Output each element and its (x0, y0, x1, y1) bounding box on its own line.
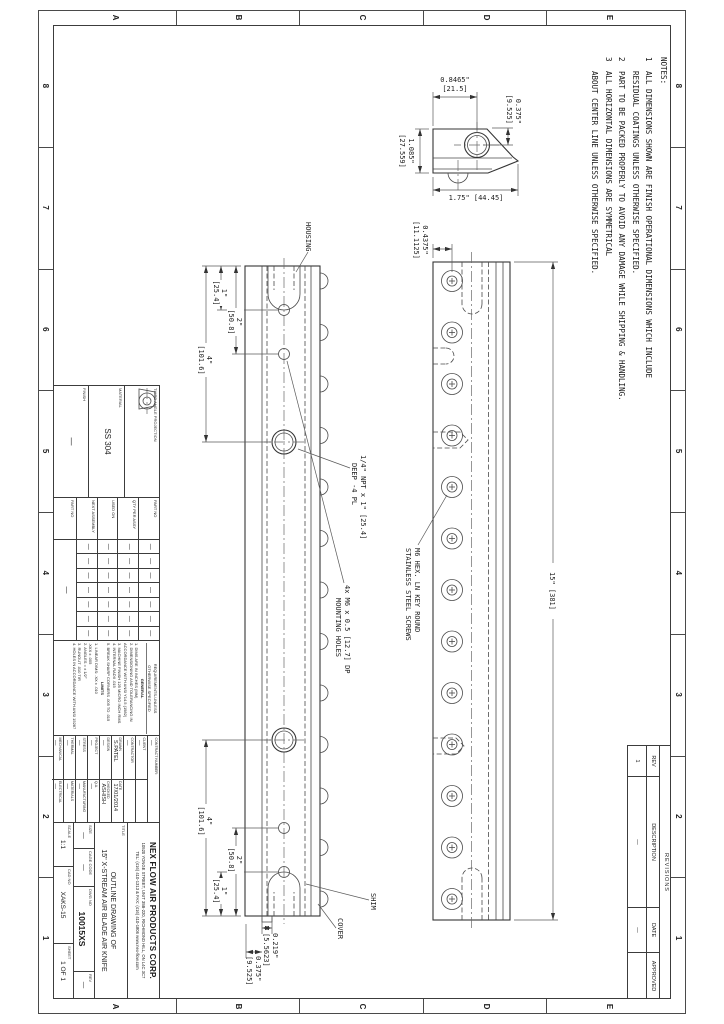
signoff-value: — (136, 736, 142, 779)
signoff-value: — (64, 736, 70, 779)
limit-requirement: 2. ANGLES = ± 1/2° (82, 643, 88, 734)
requirements-block: REQUIREMENTS-UNLESS OTHERWISE SPECIFIED … (54, 641, 159, 736)
contract-number-label: CONTRACT NUMBER: (154, 736, 159, 822)
signoff-label: THERMAL (70, 736, 75, 779)
dwg-no-value: 10015XS (77, 887, 87, 971)
revision-description: — (627, 777, 646, 908)
dim-2in-mm: [50.8] (227, 847, 235, 872)
requirements-and-signoff-block: REQUIREMENTS-UNLESS OTHERWISE SPECIFIED … (54, 641, 159, 823)
signoff-row: CONTRACTOR— (123, 736, 135, 822)
screw-head-bump (320, 325, 328, 341)
dim-endview-height: 1.085" (407, 138, 415, 163)
signoff-row: DESIGN—CHECKEDASHISH (99, 736, 111, 822)
general-requirement: 5. BREAK SHARP CORNERS .005 TO .015 (106, 643, 112, 734)
dim-step1: 0.219" (271, 933, 279, 958)
label-cover: COVER (336, 918, 344, 940)
label-npt-note: DEEP -4 PL (350, 463, 358, 505)
dim-screw-offset: 0.4375" (421, 225, 429, 255)
signoff-value: — (88, 780, 94, 823)
revisions-header-date: DATE (647, 908, 659, 953)
dim-endview-height-mm: [27.559] (398, 134, 406, 168)
cage-code-value: — (80, 849, 87, 886)
cage-code-label: CAGE CODE (88, 849, 94, 886)
label-shim: SHIM (369, 893, 377, 910)
signoff-cell: MECHANICAL— (52, 736, 63, 780)
screw-head-bump (320, 891, 328, 907)
size-value: — (80, 823, 87, 848)
label-npt-note: 1/4" NPT x 1" [25.4] (359, 455, 367, 539)
signoff-cell: MANUFACTURING— (76, 780, 87, 823)
company-block: NEX FLOW AIR PRODUCTS CORP. 10520 YONGE … (54, 823, 159, 998)
front-view: 15" [381] 0.4375" [11.1125] M6 HEX. LN K… (404, 221, 560, 930)
application-cell: — (139, 554, 159, 568)
dim-1in: 1" (220, 289, 228, 297)
drawing-sheet: 8877665544332211EEDDCCBBAA NOTES: 1ALL D… (0, 0, 724, 1024)
signoff-label: ELECTRICAL (58, 780, 63, 823)
application-row: USED ON——————— (97, 498, 118, 640)
revisions-header-rev: REV (647, 746, 659, 777)
signoff-label (135, 780, 136, 823)
application-row-label: USED ON (98, 498, 118, 540)
signoff-cell: MATERIALS— (64, 780, 75, 823)
signoff-cell: STRESS— (76, 736, 87, 780)
limit-requirement: 3. RUNOUT .010 TIR (77, 643, 83, 734)
screw-head-bump (320, 634, 328, 650)
signoff-cell: DATE17/01/2014 (112, 780, 123, 823)
signoff-block: CONTRACT NUMBER: — CLIENT—CONTRACTOR—DRA… (54, 736, 159, 822)
signoff-cell: CONTRACTOR— (124, 736, 135, 780)
signoff-cell: Q.A.— (88, 780, 99, 823)
application-cell: — (119, 612, 139, 626)
revisions-header-approved: APPROVED (647, 953, 659, 999)
signoff-cell: PROJECT— (88, 736, 99, 780)
dim-overall-length: 15" [381] (548, 572, 556, 610)
screw-head-bump (320, 376, 328, 392)
signoff-label: STRESS (82, 736, 87, 779)
dim-endview-width-mm: [21.5] (442, 85, 467, 93)
signoff-label (147, 780, 148, 823)
label-mounting-note: MOUNTING HOLES (334, 598, 342, 657)
signoff-label: MANUFACTURING (82, 780, 87, 823)
dim-endview-total: 1.75" [44.45] (449, 194, 504, 202)
application-cell: — (77, 540, 97, 554)
requirements-header: OTHERWISE SPECIFIED (147, 643, 153, 734)
application-row-label: QTY PER ASSY (119, 498, 139, 540)
application-cell: — (77, 569, 97, 583)
application-row: NEXT ASSEMBLY——————— (76, 498, 97, 640)
signoff-label: PROJECT (94, 736, 99, 779)
application-cell: — (139, 540, 159, 554)
application-row: QTY PER ASSY——————— (118, 498, 139, 640)
dwg-no-label: DWG NO (88, 887, 94, 971)
application-cell: — (77, 583, 97, 597)
dim-1in: 1" (220, 887, 228, 895)
application-cell: — (119, 569, 139, 583)
dim-2in: 2" (235, 318, 243, 326)
finish-value: — (67, 386, 76, 497)
screw-head-bump (320, 685, 328, 701)
limits-title: LIMITS (99, 643, 105, 734)
dim-4in-mm: [101.6] (197, 806, 205, 836)
general-title: GENERAL (139, 643, 145, 734)
application-cell: — (139, 569, 159, 583)
application-row: PART NO——————— (138, 498, 159, 640)
drawing-title: 15" X-STREAM AIR BLADE AIR KNIFE (99, 823, 108, 998)
signoff-value: ASHISH (100, 780, 106, 823)
screw-head-bump (320, 582, 328, 598)
third-angle-projection-icon (127, 386, 153, 497)
dim-2in-mm: [50.8] (227, 309, 235, 334)
requirements-header: REQUIREMENTS-UNLESS (152, 643, 158, 734)
application-cell: — (139, 612, 159, 626)
application-cell: — (98, 540, 118, 554)
revision-number: 1 (627, 746, 646, 777)
part-no-label: PART NO (54, 498, 76, 540)
sheet-value: 1 OF 1 (59, 944, 66, 998)
signoff-row: MECHANICAL—ELECTRICAL— (52, 736, 63, 822)
dim-4in: 4" (205, 817, 213, 825)
application-cell: — (139, 583, 159, 597)
title-block: THIRD ANGLE PROJECTION MATERIAL SS 304 F… (53, 385, 160, 999)
dim-endview-port-offset: 0.375" (514, 99, 522, 124)
material-block: THIRD ANGLE PROJECTION MATERIAL SS 304 F… (54, 386, 159, 498)
application-cell: — (98, 598, 118, 612)
signoff-cell (136, 780, 147, 823)
application-cell: — (119, 540, 139, 554)
signoff-cell (124, 780, 135, 823)
signoff-value: — (100, 736, 106, 779)
rev-label: REV (88, 972, 94, 998)
dim-2in: 2" (235, 856, 243, 864)
signoff-label: CONTRACTOR (130, 736, 135, 779)
dim-step2: 0.375" (254, 956, 262, 981)
application-cell: — (139, 598, 159, 612)
signoff-cell: DESIGN— (100, 736, 111, 780)
label-screw-note: M6 HEX. LN KEY ROUND (413, 548, 421, 632)
application-cell: — (98, 583, 118, 597)
dim-4in-mm: [101.6] (197, 345, 205, 375)
dim-1in-mm: [25.4] (212, 280, 220, 305)
dim-step1-mm: [5.5623] (262, 933, 270, 967)
drawing-title: OUTLINE DRAWING OF (108, 823, 117, 998)
screw-head-bump (320, 788, 328, 804)
limit-requirement: 4. HOLES IN ACCORDANCE WITH ANSI 15287 (71, 643, 77, 734)
size-label: SIZE (88, 823, 94, 848)
signoff-row: STRESS—MANUFACTURING— (75, 736, 87, 822)
screw-head-bump (320, 840, 328, 856)
signoff-cell: CLIENT— (136, 736, 147, 780)
sheet-label: SHEET (67, 944, 73, 998)
application-cell: — (119, 554, 139, 568)
dim-endview-width: 0.8465" (440, 76, 470, 84)
dim-screw-offset-mm: [11.1125] (412, 221, 420, 259)
signoff-label: CLIENT (142, 736, 147, 779)
end-view: 0.8465" [21.5] 0.375" [9.525] 1.085" [27… (398, 76, 522, 202)
application-block: PART NO———————QTY PER ASSY———————USED ON… (54, 498, 159, 641)
title-label: TITLE (121, 823, 127, 998)
application-cell: — (119, 627, 139, 640)
signoff-label: CHECKED (106, 780, 111, 823)
signoff-row: THERMAL—MATERIALS— (63, 736, 75, 822)
finish-label: FINISH (82, 386, 88, 497)
signoff-cell: ELECTRICAL— (52, 780, 63, 823)
signoff-value: 17/01/2014 (112, 780, 118, 823)
dim-step2-mm: [9.525] (245, 956, 253, 986)
application-cell: — (98, 569, 118, 583)
general-requirement: 3. MACHINE FINISH 125 MICRO INCH RMS (117, 643, 123, 734)
cad-no-label: CAD NO (67, 867, 73, 943)
signoff-cell: CHECKEDASHISH (100, 780, 111, 823)
signoff-label: MECHANICAL (58, 736, 63, 779)
signoff-value: — (88, 736, 94, 779)
signoff-label: DRAWN (118, 736, 123, 779)
application-cell: — (119, 598, 139, 612)
limit-requirement: 1. LINEAR DIMS: .XX ± .010 (93, 643, 99, 734)
screw-head-bump (320, 428, 328, 444)
cad-no-value: XAKS-15 (59, 867, 66, 943)
dim-1in-mm: [25.4] (212, 878, 220, 903)
signoff-cell: DRAWNS.PATEL (112, 736, 123, 780)
application-cell: — (98, 627, 118, 640)
signoff-value: S.PATEL (112, 736, 118, 779)
application-row-label: NEXT ASSEMBLY (77, 498, 97, 540)
dim-endview-port-offset-mm: [9.525] (505, 94, 513, 124)
signoff-label: DATE (118, 780, 123, 823)
signoff-row: CLIENT— (135, 736, 147, 822)
rev-value: — (80, 972, 87, 998)
part-no-value: — (54, 540, 76, 640)
signoff-value: — (76, 736, 82, 779)
application-cell: — (98, 554, 118, 568)
application-cell: — (139, 627, 159, 640)
revisions-header-description: DESCRIPTION (647, 777, 659, 908)
signoff-cell: THERMAL— (64, 736, 75, 780)
general-requirement: 1. DIMS ARE IN INCHES (MM) (134, 643, 140, 734)
screw-head-bump (320, 737, 328, 753)
material-value: SS 304 (103, 386, 112, 497)
dim-4in: 4" (205, 356, 213, 364)
scale-label: SCALE (67, 823, 73, 866)
company-address: 10520 YONGE STREET, UNIT 35B-220, RICHMO… (142, 823, 147, 998)
company-name: NEX FLOW AIR PRODUCTS CORP. (148, 823, 157, 998)
screw-head-bump (320, 531, 328, 547)
scale-value: 1:1 (59, 823, 66, 866)
label-housing: HOUSING (304, 222, 312, 252)
screw-head-bump (320, 479, 328, 495)
application-cell: — (77, 598, 97, 612)
signoff-label: Q.A. (94, 780, 99, 823)
application-row-label: PART NO (139, 498, 159, 540)
application-cell: — (77, 627, 97, 640)
general-requirement: 2. DIMENSIONING AND TOLERANCING IN (128, 643, 134, 734)
application-cell: — (77, 554, 97, 568)
screw-head-bump (320, 273, 328, 289)
revision-date: — (627, 908, 646, 953)
company-tel: TEL: (416) 410-1313 & FAX: (416) 410-180… (135, 823, 140, 998)
application-cell: — (98, 612, 118, 626)
application-cell: — (77, 612, 97, 626)
application-cell: — (119, 583, 139, 597)
signoff-label: MATERIALS (70, 780, 75, 823)
revisions-table: REVISIONS REV DESCRIPTION DATE APPROVED … (627, 745, 671, 999)
signoff-label: DESIGN (106, 736, 111, 779)
signoff-row: PROJECT—Q.A.— (87, 736, 99, 822)
signoff-row: DRAWNS.PATELDATE17/01/2014 (111, 736, 123, 822)
label-mounting-note: 4x M6 x 0.5 [12.7] DP (343, 585, 351, 674)
material-label: MATERIAL (118, 386, 124, 497)
label-screw-note: STAINLESS STEEL SCREWS (404, 548, 412, 641)
section-view: HOUSING 1/4" NPT x 1" [25.4] DEEP -4 PL … (197, 222, 377, 986)
revision-approved (627, 953, 646, 999)
revisions-title: REVISIONS (659, 746, 671, 999)
